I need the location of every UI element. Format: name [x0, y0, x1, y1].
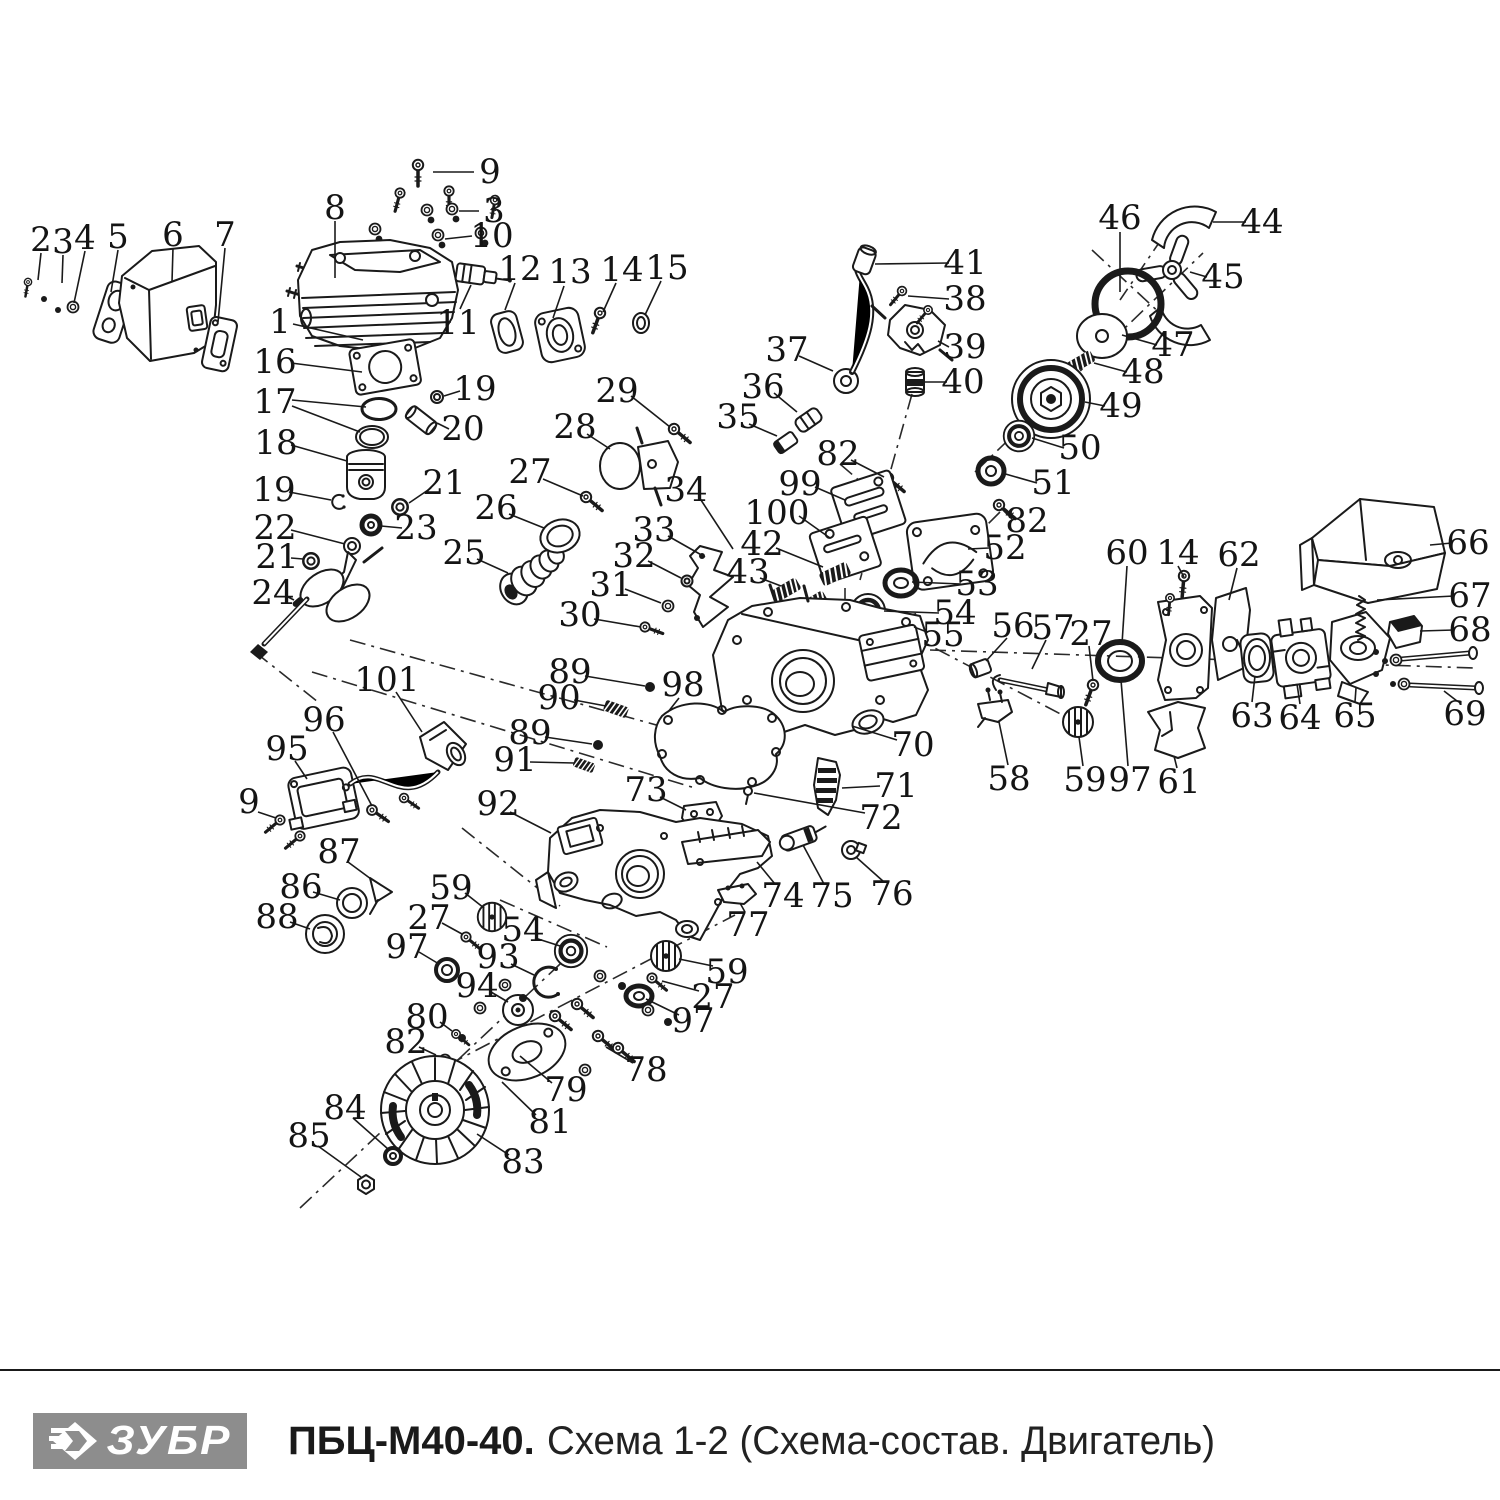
part-label-44: 44: [1240, 202, 1283, 242]
oiler-shaft-57-drawing: [993, 675, 1064, 698]
circlip-93-drawing: [534, 967, 560, 997]
cap-15-drawing: [633, 313, 649, 333]
fastener-set-2-3-4: [22, 278, 79, 313]
part-label-55: 55: [921, 615, 964, 655]
part-label-8: 8: [324, 188, 346, 228]
leader-line-17: [292, 406, 360, 432]
leader-line-17: [292, 400, 366, 407]
leader-line-4: [74, 251, 85, 303]
part-label-61: 61: [1157, 762, 1200, 802]
nut-19-right: [431, 391, 443, 403]
part-label-68: 68: [1448, 610, 1491, 650]
part-label-34: 34: [664, 470, 707, 510]
model-number: ПБЦ-М40-40.: [288, 1419, 535, 1464]
part-label-43: 43: [726, 552, 769, 592]
pin-72-drawing: [744, 787, 752, 804]
plug-cap-101-drawing: [420, 722, 469, 770]
worm-59-lower: [651, 941, 681, 971]
part-label-92: 92: [476, 784, 519, 824]
part-label-14: 14: [1156, 533, 1199, 573]
gasket-98-drawing: [655, 703, 785, 788]
part-label-82: 82: [816, 434, 859, 474]
part-label-52: 52: [983, 528, 1026, 568]
seal-53-drawing: [885, 570, 917, 596]
part-label-26: 26: [474, 488, 517, 528]
part-label-72: 72: [859, 798, 902, 838]
part-label-38: 38: [943, 279, 986, 319]
part-label-39: 39: [943, 327, 986, 367]
screw-96-b: [398, 792, 421, 812]
part-label-25: 25: [442, 533, 485, 573]
leader-line-89: [545, 737, 592, 744]
part-label-88: 88: [255, 897, 298, 937]
footer-divider: [0, 1369, 1500, 1371]
leader-line-18: [291, 445, 347, 461]
leader-line-22: [291, 530, 345, 544]
part-label-21: 21: [422, 463, 465, 503]
bearing-23-drawing: [362, 516, 380, 534]
bracket-58-drawing: [978, 688, 1012, 728]
washer-84-drawing: [385, 1148, 401, 1164]
seal-97-lower-drawing: [626, 986, 652, 1006]
part-label-97: 97: [385, 927, 428, 967]
part-label-27: 27: [508, 452, 551, 492]
part-label-91: 91: [493, 740, 536, 780]
gasket-12-drawing: [489, 309, 524, 354]
part-label-40: 40: [941, 362, 984, 402]
mount-plate-drawing: [1158, 596, 1212, 700]
part-label-75: 75: [810, 876, 853, 916]
part-label-62: 62: [1217, 535, 1260, 575]
part-label-21: 21: [255, 537, 298, 577]
part-label-28: 28: [553, 407, 596, 447]
part-label-5: 5: [107, 217, 129, 257]
part-label-7: 7: [214, 215, 236, 255]
oil-pump-75-drawing: [778, 821, 830, 853]
part-label-97: 97: [1108, 760, 1151, 800]
part-label-77: 77: [726, 905, 769, 945]
part-label-13: 13: [548, 252, 591, 292]
part-label-41: 41: [943, 243, 986, 283]
part-label-4: 4: [74, 218, 96, 258]
grommet-76-drawing: [842, 841, 866, 859]
part-label-50: 50: [1058, 428, 1101, 468]
part-label-9: 9: [479, 152, 501, 192]
part-label-59: 59: [1063, 760, 1106, 800]
screw-29: [667, 422, 694, 447]
part-label-19: 19: [453, 369, 496, 409]
part-label-90: 90: [537, 678, 580, 718]
leader-line-60: [1122, 566, 1127, 644]
part-label-69: 69: [1443, 694, 1486, 734]
part-label-16: 16: [253, 342, 296, 382]
brand-name: ЗУБР: [107, 1421, 232, 1461]
diagram-title: ПБЦ-М40-40. Схема 1-2 (Схема-состав. Дви…: [288, 1413, 1243, 1469]
part-label-23: 23: [394, 508, 437, 548]
nut-85-drawing: [358, 1175, 374, 1194]
part-label-2: 2: [30, 220, 52, 260]
part-label-12: 12: [498, 249, 541, 289]
plate-61-drawing: [1148, 702, 1205, 758]
leader-line-10: [445, 236, 472, 239]
cylinder-drawing: [298, 240, 458, 350]
flange-63-drawing: [1240, 633, 1275, 684]
leader-line-97: [1121, 680, 1128, 766]
part-label-37: 37: [765, 330, 808, 370]
part-label-60: 60: [1105, 533, 1148, 573]
schema-subtitle: Схема 1-2 (Схема-состав. Двигатель): [547, 1419, 1215, 1464]
part-label-59: 59: [705, 952, 748, 992]
part-label-94: 94: [455, 966, 498, 1006]
part-label-87: 87: [317, 832, 360, 872]
part-label-24: 24: [251, 573, 294, 613]
part-label-96: 96: [302, 700, 345, 740]
zubr-logo: ЗУБР: [33, 1413, 247, 1469]
part-label-15: 15: [645, 248, 688, 288]
part-label-18: 18: [254, 423, 297, 463]
part-label-20: 20: [441, 409, 484, 449]
part-label-73: 73: [624, 770, 667, 810]
circlip-19-drawing: [332, 494, 345, 508]
nut-32: [682, 576, 693, 587]
bushing-56-drawing: [968, 658, 992, 678]
part-label-58: 58: [987, 759, 1030, 799]
muffler-drawing: [119, 246, 216, 361]
part-label-95: 95: [265, 729, 308, 769]
part-label-56: 56: [991, 606, 1034, 646]
washer-21-left: [303, 553, 318, 568]
bushing-40-drawing: [906, 368, 924, 396]
part-label-9: 9: [238, 782, 260, 822]
part-label-98: 98: [661, 665, 704, 705]
screw-27-a: [579, 490, 606, 515]
part-label-51: 51: [1031, 463, 1074, 503]
disc-94-drawing: [503, 995, 533, 1025]
part-label-46: 46: [1098, 198, 1141, 238]
part-label-1: 1: [269, 302, 291, 342]
screw-9-b: [283, 829, 307, 851]
pulley-88-drawing: [306, 915, 344, 953]
screw-96-a: [365, 803, 391, 825]
part-label-76: 76: [870, 874, 913, 914]
leader-line-7: [218, 248, 225, 322]
part-label-29: 29: [595, 371, 638, 411]
piston-drawing: [347, 450, 385, 499]
part-label-101: 101: [355, 660, 420, 700]
part-label-64: 64: [1278, 698, 1321, 738]
block-68-drawing: [1388, 616, 1422, 648]
detent-parts-drawing: [572, 682, 655, 773]
screw-30: [639, 621, 664, 638]
part-label-11: 11: [436, 303, 479, 343]
washer-31: [663, 601, 674, 612]
leader-line-89: [585, 676, 645, 686]
spring-87-drawing: [370, 878, 392, 914]
part-label-63: 63: [1230, 696, 1273, 736]
exploded-parts-diagram: 2345679831011112131415161719201821192223…: [0, 0, 1500, 1369]
part-label-85: 85: [287, 1116, 330, 1156]
part-label-83: 83: [501, 1142, 544, 1182]
part-label-36: 36: [741, 367, 784, 407]
part-label-17: 17: [253, 382, 296, 422]
part-label-14: 14: [600, 250, 643, 290]
part-label-78: 78: [624, 1050, 667, 1090]
leader-line-41: [875, 263, 949, 264]
wrist-pin-drawing: [404, 404, 438, 436]
part-label-81: 81: [528, 1102, 571, 1142]
part-label-49: 49: [1099, 386, 1142, 426]
part-label-82: 82: [384, 1022, 427, 1062]
airbox-66-drawing: [1300, 499, 1445, 603]
ignition-coil-drawing: [281, 766, 360, 831]
manifold-13-drawing: [533, 306, 586, 364]
part-label-30: 30: [558, 595, 601, 635]
part-label-19: 19: [252, 470, 295, 510]
worm-59-right: [1063, 707, 1093, 737]
part-label-65: 65: [1333, 696, 1376, 736]
part-label-3: 3: [52, 222, 74, 262]
leader-line-72: [754, 793, 865, 813]
screw-27-right: [1081, 678, 1100, 706]
part-label-45: 45: [1201, 257, 1244, 297]
part-label-66: 66: [1446, 523, 1489, 563]
bearing-54-lower: [555, 935, 587, 967]
bolts-69-drawing: [1373, 647, 1483, 694]
part-label-57: 57: [1031, 608, 1074, 648]
zubr-logo-icon: [49, 1420, 99, 1462]
leader-line-9: [258, 812, 276, 818]
part-label-6: 6: [162, 215, 184, 255]
carburetor-64-drawing: [1269, 614, 1333, 699]
part-label-70: 70: [891, 725, 934, 765]
washer-86-drawing: [337, 888, 367, 918]
parts-diagram-page: 2345679831011112131415161719201821192223…: [0, 0, 1500, 1500]
part-label-27: 27: [1069, 614, 1112, 654]
